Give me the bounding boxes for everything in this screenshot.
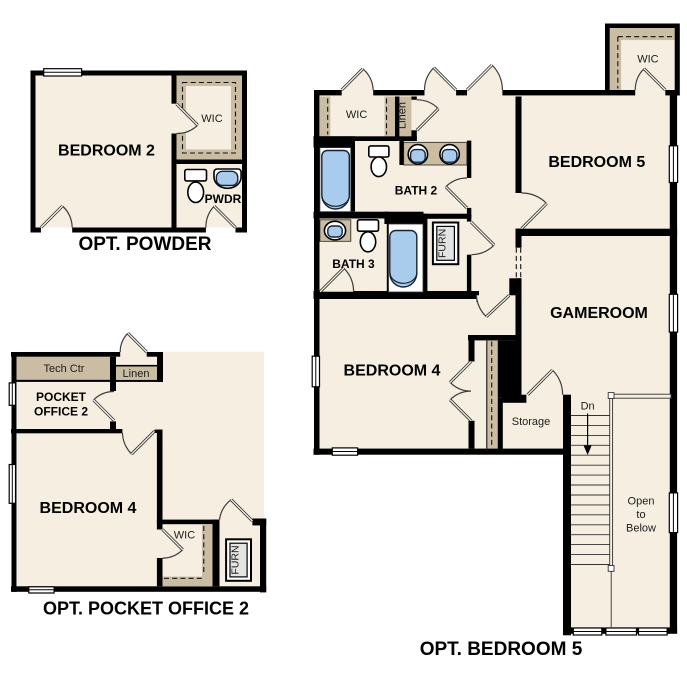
svg-text:BATH 3: BATH 3: [332, 257, 375, 271]
svg-text:POCKET: POCKET: [36, 390, 87, 404]
svg-text:WIC: WIC: [637, 54, 658, 66]
svg-text:WIC: WIC: [346, 109, 367, 121]
svg-text:FURN: FURN: [437, 229, 449, 258]
svg-text:Open: Open: [628, 496, 655, 508]
svg-text:PWDR: PWDR: [205, 192, 242, 206]
svg-text:BEDROOM 4: BEDROOM 4: [344, 363, 441, 380]
svg-text:Dn: Dn: [581, 401, 595, 413]
svg-text:BEDROOM 2: BEDROOM 2: [58, 143, 155, 160]
svg-text:OPT. POWDER: OPT. POWDER: [78, 234, 211, 255]
svg-text:BEDROOM 5: BEDROOM 5: [548, 154, 645, 171]
svg-text:FURN: FURN: [230, 545, 242, 574]
svg-text:Below: Below: [626, 523, 656, 535]
svg-text:Linen: Linen: [397, 102, 409, 129]
svg-text:BEDROOM 4: BEDROOM 4: [40, 500, 137, 517]
svg-text:Linen: Linen: [123, 368, 150, 380]
svg-text:OPT. BEDROOM 5: OPT. BEDROOM 5: [420, 639, 583, 660]
svg-text:GAMEROOM: GAMEROOM: [550, 305, 648, 322]
svg-text:WIC: WIC: [201, 113, 222, 125]
svg-text:Tech Ctr: Tech Ctr: [44, 363, 85, 375]
svg-text:OFFICE 2: OFFICE 2: [34, 405, 88, 419]
svg-text:WIC: WIC: [174, 530, 195, 542]
svg-text:OPT. POCKET OFFICE 2: OPT. POCKET OFFICE 2: [43, 599, 249, 619]
svg-text:Storage: Storage: [512, 416, 551, 428]
svg-text:to: to: [636, 509, 645, 521]
svg-text:BATH 2: BATH 2: [395, 184, 438, 198]
